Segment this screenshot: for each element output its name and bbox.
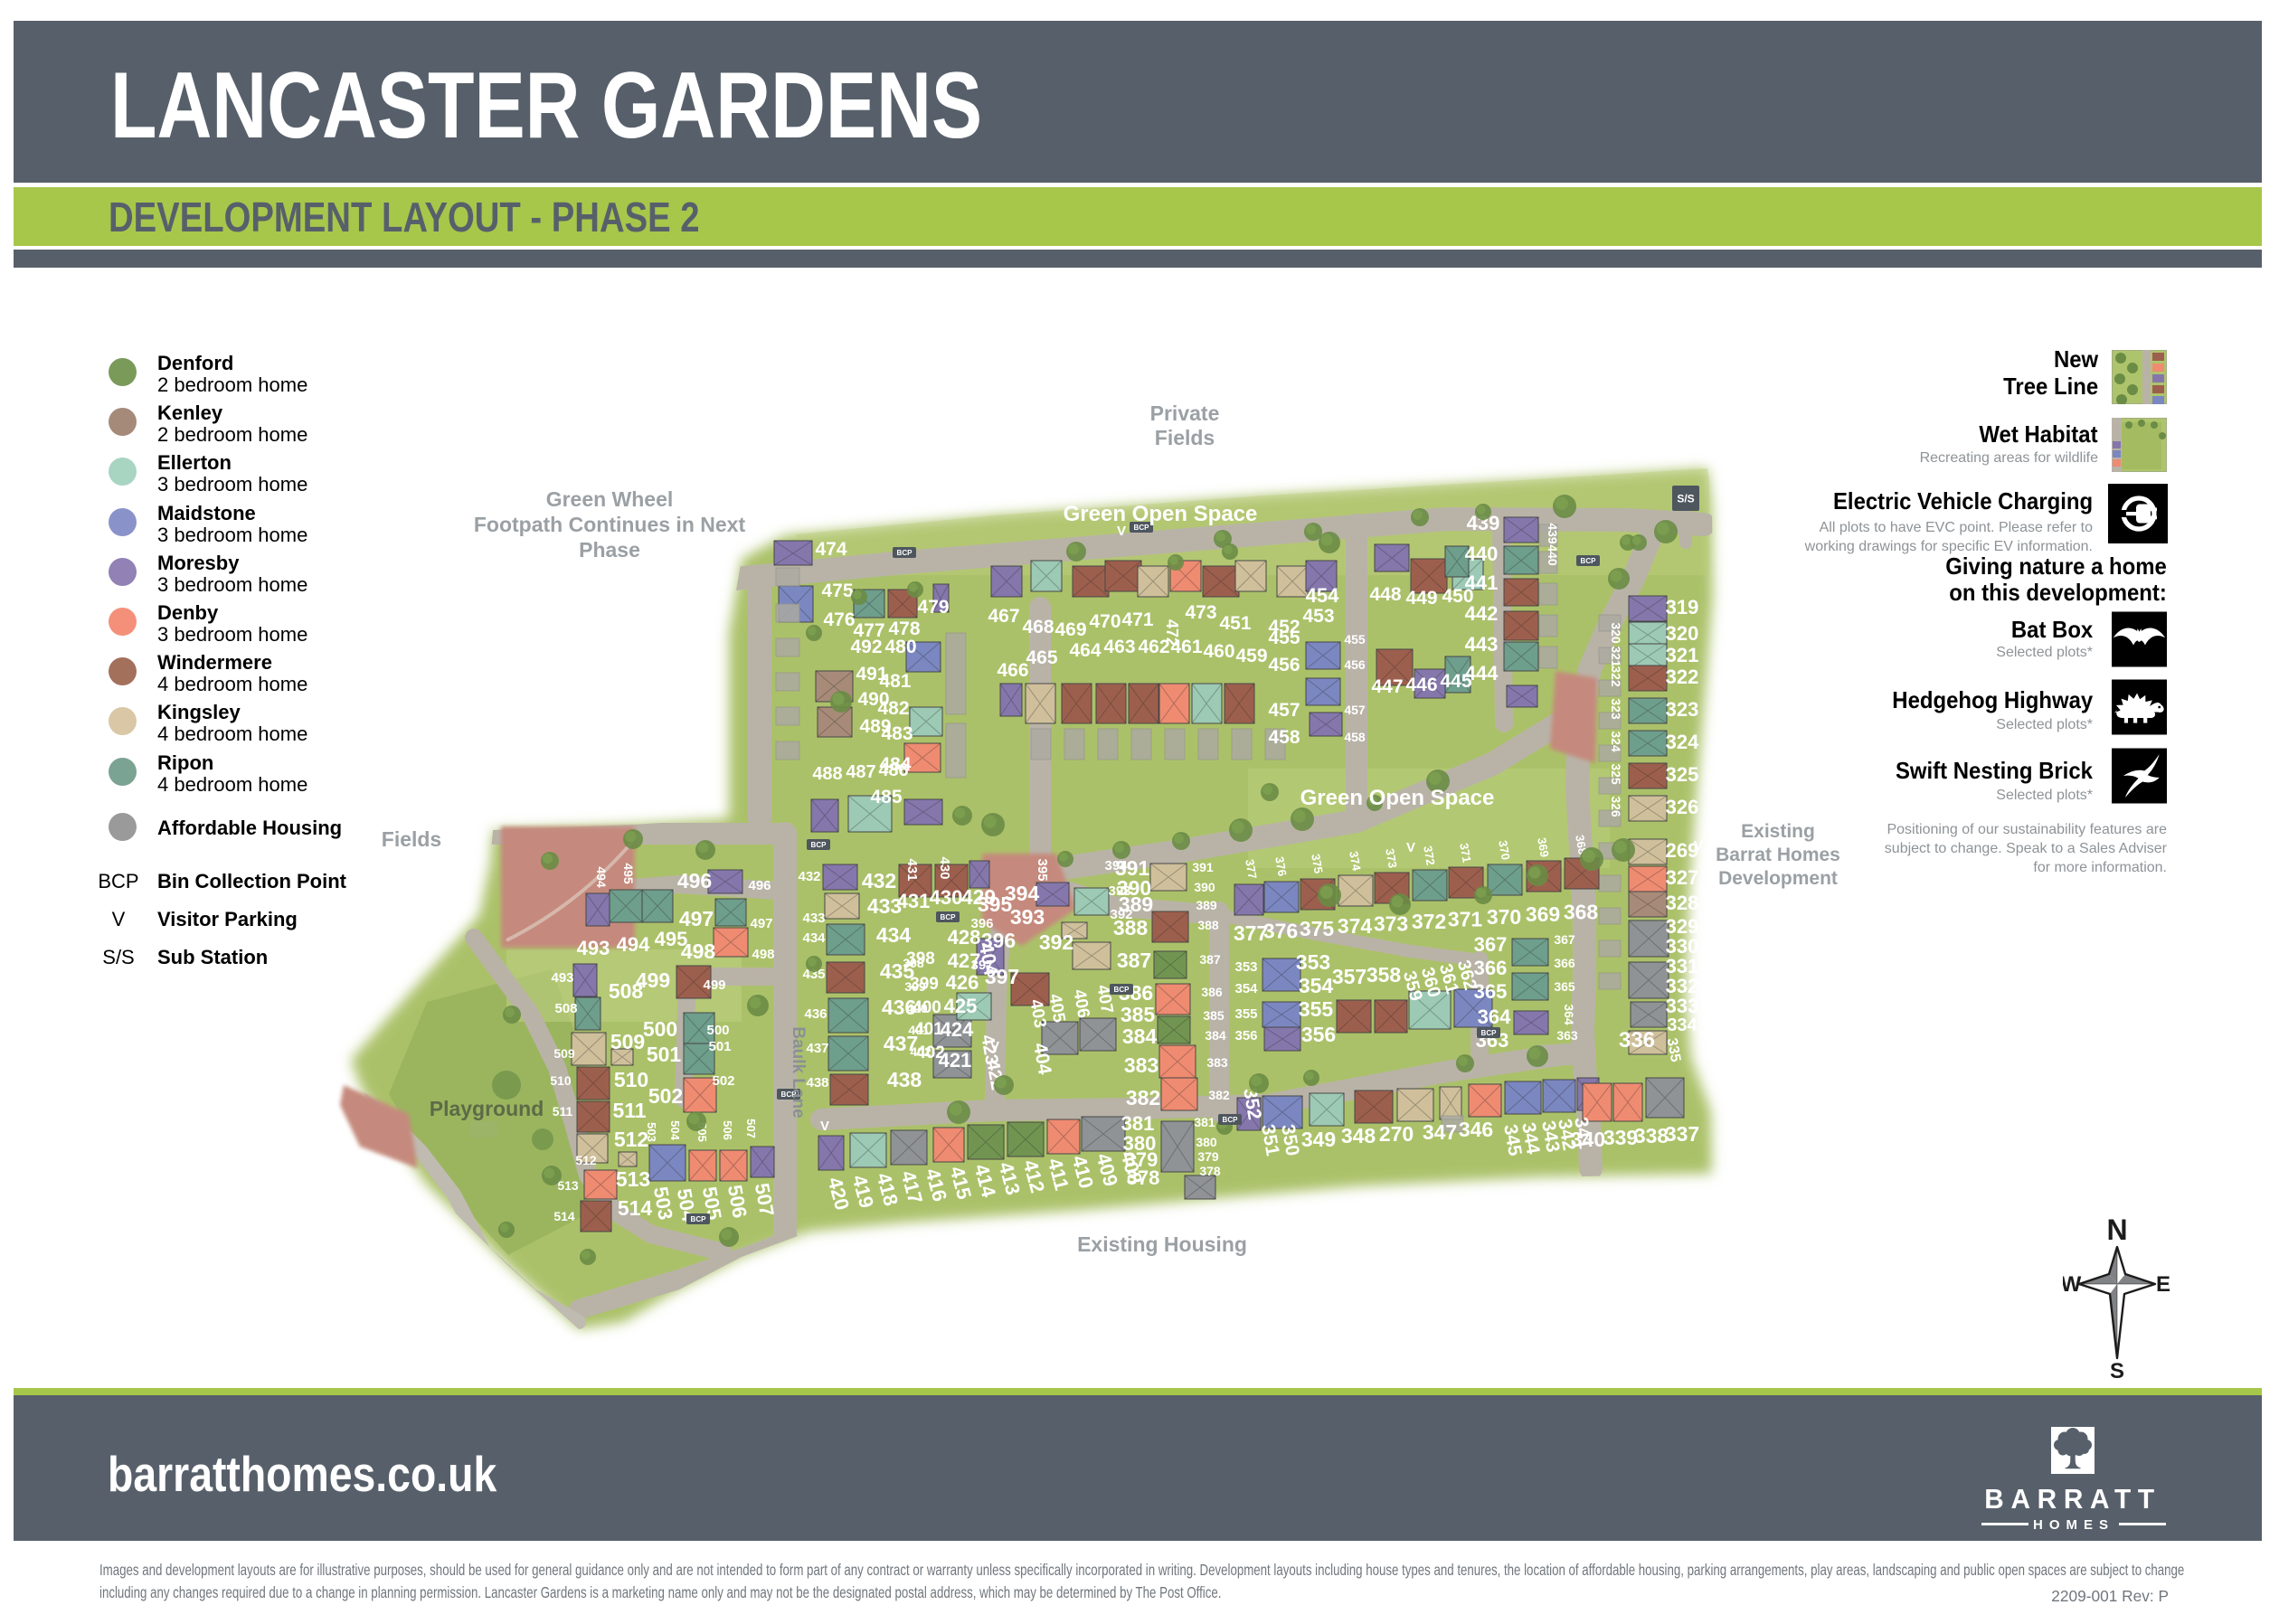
svg-text:363: 363: [1556, 1028, 1578, 1043]
svg-text:Private: Private: [1150, 401, 1220, 425]
svg-text:327: 327: [1666, 866, 1699, 889]
svg-text:498: 498: [752, 947, 774, 962]
svg-text:511: 511: [553, 1104, 573, 1119]
svg-text:S/S: S/S: [1677, 492, 1694, 505]
svg-text:433: 433: [802, 911, 825, 926]
svg-text:497: 497: [679, 907, 714, 930]
svg-text:368: 368: [1564, 901, 1599, 924]
svg-text:430: 430: [937, 856, 952, 879]
svg-text:355: 355: [1299, 997, 1334, 1021]
svg-text:367: 367: [1554, 932, 1575, 947]
svg-text:469: 469: [1054, 619, 1086, 640]
svg-text:382: 382: [1208, 1088, 1230, 1102]
svg-text:366: 366: [1474, 957, 1508, 979]
svg-text:328: 328: [1666, 892, 1699, 914]
svg-text:457: 457: [1268, 700, 1300, 721]
svg-text:Fields: Fields: [382, 827, 441, 851]
svg-text:375: 375: [1300, 917, 1335, 940]
svg-text:504: 504: [668, 1120, 682, 1140]
svg-text:432: 432: [798, 869, 820, 884]
svg-text:383: 383: [1206, 1055, 1228, 1070]
svg-text:384: 384: [1205, 1028, 1226, 1043]
svg-text:398: 398: [903, 956, 924, 970]
svg-text:BCP: BCP: [1223, 1116, 1239, 1124]
svg-text:386: 386: [1201, 985, 1223, 999]
svg-text:509: 509: [610, 1030, 645, 1053]
svg-text:365: 365: [1474, 980, 1508, 1003]
svg-text:389: 389: [1119, 892, 1153, 916]
svg-text:356: 356: [1234, 1028, 1257, 1043]
svg-text:500: 500: [643, 1017, 677, 1041]
svg-text:434: 434: [802, 930, 826, 946]
svg-text:E: E: [2156, 1272, 2170, 1297]
svg-text:388: 388: [1197, 918, 1219, 932]
svg-text:BCP: BCP: [691, 1215, 707, 1223]
svg-text:334: 334: [1667, 1015, 1697, 1035]
svg-text:488: 488: [812, 764, 842, 784]
svg-text:391: 391: [1192, 860, 1214, 874]
svg-text:270: 270: [1379, 1122, 1414, 1146]
svg-text:384: 384: [1122, 1024, 1158, 1048]
svg-text:462: 462: [1138, 637, 1169, 657]
svg-text:449: 449: [1405, 588, 1437, 609]
svg-text:443: 443: [1465, 633, 1499, 656]
svg-text:431: 431: [897, 890, 931, 912]
svg-text:324: 324: [1609, 731, 1623, 752]
svg-text:387: 387: [1117, 949, 1151, 972]
svg-text:354: 354: [1234, 981, 1258, 996]
svg-text:Green Open Space: Green Open Space: [1300, 786, 1495, 810]
svg-text:438: 438: [806, 1075, 828, 1091]
svg-text:431: 431: [904, 858, 920, 881]
svg-text:347: 347: [1423, 1120, 1457, 1144]
svg-text:493: 493: [577, 937, 610, 959]
svg-text:461: 461: [1170, 637, 1202, 657]
svg-text:437: 437: [806, 1041, 828, 1056]
svg-text:V: V: [1406, 840, 1415, 855]
svg-text:W: W: [2063, 1272, 2082, 1297]
svg-text:511: 511: [612, 1099, 646, 1122]
svg-text:447: 447: [1371, 676, 1403, 697]
svg-text:448: 448: [1369, 584, 1401, 605]
svg-text:324: 324: [1666, 731, 1699, 753]
svg-text:BCP: BCP: [1114, 986, 1130, 994]
svg-text:319: 319: [1666, 596, 1699, 618]
svg-text:510: 510: [614, 1068, 648, 1091]
svg-text:455: 455: [1268, 628, 1300, 648]
svg-text:456: 456: [1268, 655, 1300, 675]
svg-text:444: 444: [1465, 662, 1499, 685]
svg-text:460: 460: [1203, 641, 1234, 662]
svg-text:458: 458: [1268, 727, 1300, 748]
svg-text:501: 501: [647, 1043, 682, 1066]
svg-text:454: 454: [1306, 584, 1339, 607]
svg-text:484: 484: [879, 754, 911, 775]
svg-text:465: 465: [1026, 647, 1057, 668]
svg-text:501: 501: [708, 1039, 731, 1054]
svg-text:346: 346: [1459, 1118, 1493, 1141]
svg-text:466: 466: [997, 660, 1028, 681]
svg-text:474: 474: [815, 539, 846, 560]
svg-text:BCP: BCP: [1581, 557, 1597, 565]
svg-text:388: 388: [1113, 916, 1149, 939]
svg-text:353: 353: [1296, 950, 1330, 974]
svg-text:495: 495: [621, 863, 636, 884]
svg-text:496: 496: [677, 869, 712, 892]
svg-text:499: 499: [703, 977, 725, 993]
svg-text:321: 321: [1666, 644, 1699, 666]
svg-text:455: 455: [1344, 632, 1366, 647]
svg-text:365: 365: [1554, 979, 1575, 994]
svg-text:S: S: [2110, 1359, 2124, 1379]
svg-text:364: 364: [1562, 1004, 1576, 1025]
svg-text:321: 321: [1609, 646, 1623, 667]
svg-text:369: 369: [1526, 902, 1560, 926]
svg-text:514: 514: [618, 1196, 653, 1220]
svg-text:498: 498: [681, 939, 716, 963]
svg-text:425: 425: [944, 995, 978, 1017]
svg-text:325: 325: [1609, 763, 1623, 785]
svg-text:402: 402: [910, 1044, 931, 1059]
svg-text:463: 463: [1103, 637, 1135, 657]
svg-text:436: 436: [804, 1006, 827, 1022]
svg-text:393: 393: [1010, 905, 1045, 929]
svg-text:494: 494: [617, 933, 650, 956]
svg-text:480: 480: [884, 637, 916, 657]
svg-text:356: 356: [1301, 1023, 1336, 1046]
svg-text:397: 397: [970, 958, 993, 973]
svg-text:440: 440: [1546, 544, 1560, 566]
svg-text:396: 396: [970, 916, 993, 931]
svg-text:385: 385: [1121, 1003, 1156, 1026]
svg-text:371: 371: [1448, 907, 1483, 930]
svg-text:507: 507: [744, 1119, 758, 1138]
svg-text:396: 396: [981, 929, 1016, 952]
svg-text:467: 467: [988, 606, 1019, 627]
svg-text:338: 338: [1634, 1124, 1669, 1147]
svg-text:503: 503: [645, 1122, 658, 1142]
svg-text:487: 487: [846, 762, 875, 782]
svg-text:502: 502: [648, 1084, 683, 1108]
svg-text:BCP: BCP: [1481, 1029, 1498, 1037]
svg-text:430: 430: [930, 886, 963, 909]
svg-text:V: V: [990, 1039, 999, 1054]
svg-text:Existing Housing: Existing Housing: [1077, 1232, 1247, 1256]
svg-text:355: 355: [1234, 1006, 1257, 1022]
svg-text:366: 366: [1554, 956, 1575, 970]
svg-text:323: 323: [1609, 698, 1623, 720]
svg-text:395: 395: [1035, 858, 1050, 881]
svg-text:337: 337: [1665, 1122, 1699, 1146]
svg-text:325: 325: [1666, 763, 1699, 786]
svg-text:BCP: BCP: [811, 841, 827, 849]
svg-text:378: 378: [1199, 1164, 1221, 1178]
svg-text:513: 513: [616, 1167, 650, 1191]
svg-text:473: 473: [1185, 602, 1216, 623]
svg-text:BCP: BCP: [897, 549, 913, 557]
svg-text:390: 390: [1194, 880, 1215, 894]
svg-text:514: 514: [553, 1209, 575, 1223]
svg-text:Green Wheel: Green Wheel: [546, 487, 674, 511]
svg-text:Barrat Homes: Barrat Homes: [1716, 845, 1840, 865]
svg-text:322: 322: [1609, 666, 1623, 687]
svg-text:322: 322: [1666, 666, 1699, 688]
svg-text:323: 323: [1666, 698, 1699, 721]
svg-text:512: 512: [614, 1128, 648, 1151]
svg-text:439: 439: [1546, 523, 1560, 544]
svg-text:442: 442: [1465, 602, 1499, 625]
svg-text:499: 499: [636, 968, 670, 992]
svg-text:380: 380: [1196, 1135, 1217, 1149]
svg-text:372: 372: [1412, 910, 1446, 933]
svg-text:383: 383: [1124, 1053, 1158, 1077]
svg-text:438: 438: [887, 1068, 922, 1091]
svg-text:Fields: Fields: [1155, 426, 1215, 449]
svg-text:349: 349: [1301, 1128, 1336, 1151]
svg-text:Baulk Lane: Baulk Lane: [789, 1026, 808, 1118]
svg-text:Phase: Phase: [579, 538, 640, 562]
svg-text:475: 475: [821, 581, 853, 601]
svg-text:336: 336: [1619, 1028, 1655, 1053]
svg-text:513: 513: [557, 1178, 579, 1193]
svg-text:457: 457: [1344, 703, 1366, 717]
svg-text:508: 508: [554, 1001, 577, 1016]
svg-text:432: 432: [862, 869, 896, 892]
svg-text:446: 446: [1405, 675, 1437, 695]
svg-text:376: 376: [1263, 919, 1298, 942]
svg-text:509: 509: [553, 1046, 575, 1061]
svg-text:392: 392: [1039, 930, 1073, 954]
svg-text:357: 357: [1332, 965, 1366, 988]
svg-text:492: 492: [850, 637, 882, 657]
svg-text:426: 426: [946, 971, 979, 994]
svg-text:Existing: Existing: [1741, 821, 1815, 842]
svg-text:401: 401: [908, 1023, 930, 1037]
svg-text:485: 485: [870, 787, 902, 807]
svg-text:348: 348: [1341, 1124, 1376, 1147]
svg-text:502: 502: [712, 1073, 734, 1089]
svg-text:326: 326: [1666, 796, 1699, 818]
svg-text:Development: Development: [1718, 868, 1838, 889]
svg-text:379: 379: [1197, 1149, 1219, 1164]
svg-text:479: 479: [917, 597, 949, 618]
svg-text:370: 370: [1487, 905, 1521, 929]
svg-text:496: 496: [748, 878, 771, 893]
svg-text:367: 367: [1474, 933, 1508, 956]
svg-text:374: 374: [1338, 914, 1373, 938]
svg-text:381: 381: [1194, 1115, 1215, 1129]
svg-text:424: 424: [941, 1018, 974, 1041]
svg-text:339: 339: [1603, 1126, 1638, 1149]
svg-text:Footpath Continues in Next: Footpath Continues in Next: [474, 513, 746, 536]
svg-text:333: 333: [1666, 995, 1699, 1017]
svg-text:493: 493: [551, 970, 573, 986]
svg-text:354: 354: [1299, 974, 1334, 997]
svg-text:353: 353: [1234, 959, 1257, 975]
svg-text:512: 512: [575, 1153, 597, 1167]
svg-text:470: 470: [1089, 611, 1121, 632]
svg-text:399: 399: [904, 979, 926, 994]
svg-text:476: 476: [823, 609, 855, 630]
svg-text:458: 458: [1344, 730, 1366, 744]
svg-text:320: 320: [1666, 622, 1699, 645]
svg-text:471: 471: [1121, 609, 1153, 630]
svg-text:320: 320: [1609, 622, 1623, 644]
svg-text:364: 364: [1478, 1006, 1511, 1028]
svg-text:464: 464: [1069, 640, 1101, 661]
svg-text:385: 385: [1203, 1008, 1225, 1023]
svg-text:500: 500: [706, 1023, 729, 1038]
svg-text:459: 459: [1235, 646, 1267, 666]
svg-text:510: 510: [550, 1073, 572, 1088]
svg-text:382: 382: [1126, 1086, 1160, 1109]
svg-text:V: V: [820, 1119, 829, 1134]
svg-text:395: 395: [978, 892, 1013, 916]
svg-text:Playground: Playground: [430, 1097, 544, 1120]
svg-text:506: 506: [721, 1120, 734, 1140]
svg-text:400: 400: [906, 1001, 928, 1015]
svg-text:468: 468: [1022, 617, 1054, 637]
svg-text:453: 453: [1302, 606, 1334, 627]
svg-text:340: 340: [1571, 1128, 1605, 1151]
svg-text:387: 387: [1199, 952, 1221, 967]
svg-text:483: 483: [881, 723, 913, 744]
svg-text:389: 389: [1196, 898, 1217, 912]
svg-text:434: 434: [876, 923, 912, 947]
svg-text:Green Open Space: Green Open Space: [1064, 502, 1258, 526]
svg-text:BCP: BCP: [941, 913, 957, 921]
svg-text:456: 456: [1344, 657, 1366, 672]
svg-text:494: 494: [594, 866, 609, 888]
svg-text:373: 373: [1374, 912, 1408, 936]
svg-text:N: N: [2106, 1216, 2127, 1246]
svg-text:441: 441: [1465, 571, 1499, 594]
svg-text:V: V: [1694, 838, 1703, 854]
svg-text:326: 326: [1609, 796, 1623, 817]
svg-text:451: 451: [1219, 613, 1251, 634]
svg-text:497: 497: [750, 916, 772, 931]
svg-text:358: 358: [1366, 963, 1402, 987]
svg-text:440: 440: [1465, 543, 1499, 565]
